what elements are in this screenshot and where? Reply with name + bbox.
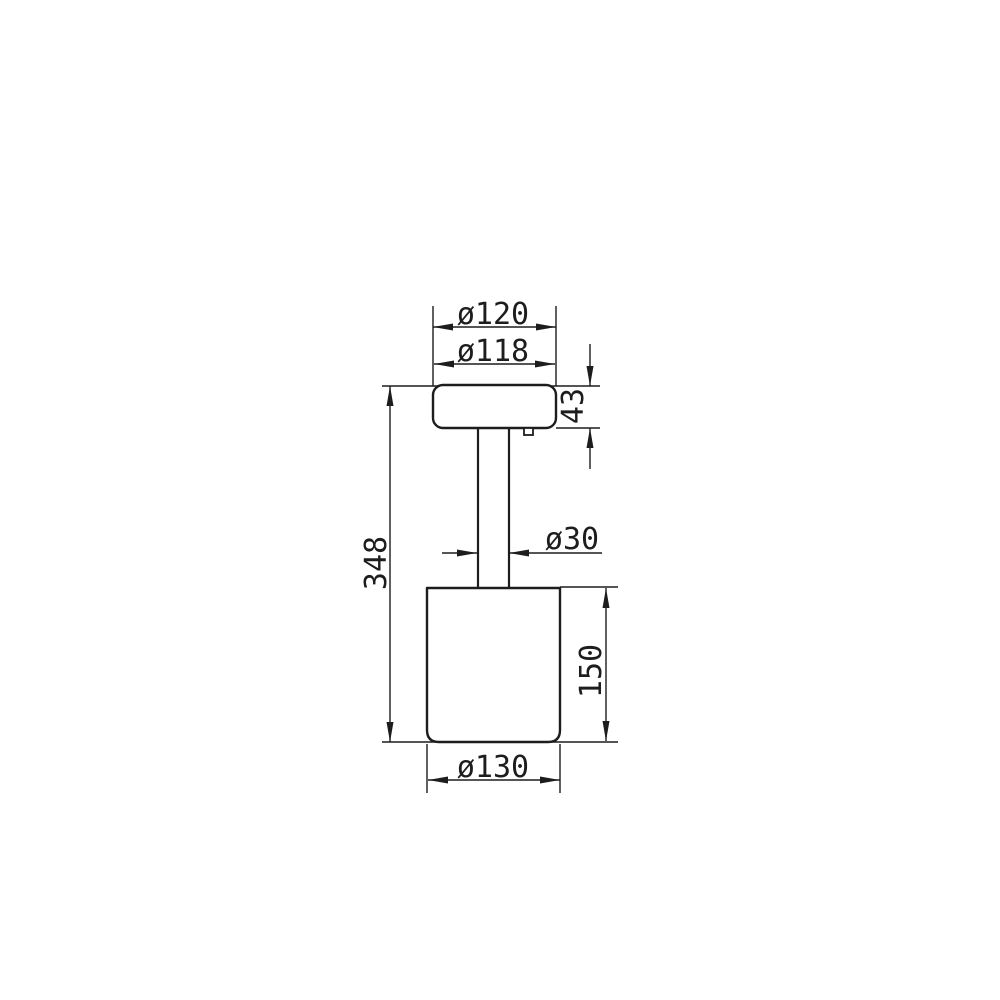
lamp-dimension-drawing-page: ø120 ø118 43 348 [0,0,1000,1000]
arrowhead-left [428,777,448,784]
dim-label-body-height: 150 [574,644,609,698]
dimension-body-height: 150 [574,588,610,741]
lamp-head-outline [433,385,556,428]
arrowhead-up [587,428,594,448]
arrowhead-left [434,361,454,368]
dimension-head-height: 43 [556,344,594,469]
dimension-stem-diameter: ø30 [442,522,602,557]
arrowhead-down [387,722,394,742]
dimension-head-outer-diameter: ø120 [433,297,556,332]
arrowhead-down [587,366,594,386]
lamp-body-outline [427,588,560,742]
dimension-head-top-diameter: ø118 [434,334,555,369]
lamp-dimension-drawing: ø120 ø118 43 348 [0,0,1000,1000]
lamp-switch-button [524,428,533,435]
arrowhead-up [603,588,610,608]
dimension-overall-height: 348 [359,386,394,742]
dim-label-head-height: 43 [556,388,591,424]
arrowhead-right [540,777,560,784]
arrowhead-right [457,550,477,557]
dim-label-head-top-diameter: ø118 [457,334,529,369]
arrowhead-up [387,386,394,406]
dimension-body-diameter: ø130 [428,750,560,785]
dim-label-stem-diameter: ø30 [545,522,599,557]
arrowhead-left [433,324,453,331]
arrowhead-left [509,550,529,557]
dim-label-overall-height: 348 [359,536,394,590]
arrowhead-down [603,721,610,741]
lamp-outline [427,385,560,742]
arrowhead-right [536,324,556,331]
dim-label-body-diameter: ø130 [457,750,529,785]
arrowhead-right [535,361,555,368]
dim-label-head-outer-diameter: ø120 [457,297,529,332]
